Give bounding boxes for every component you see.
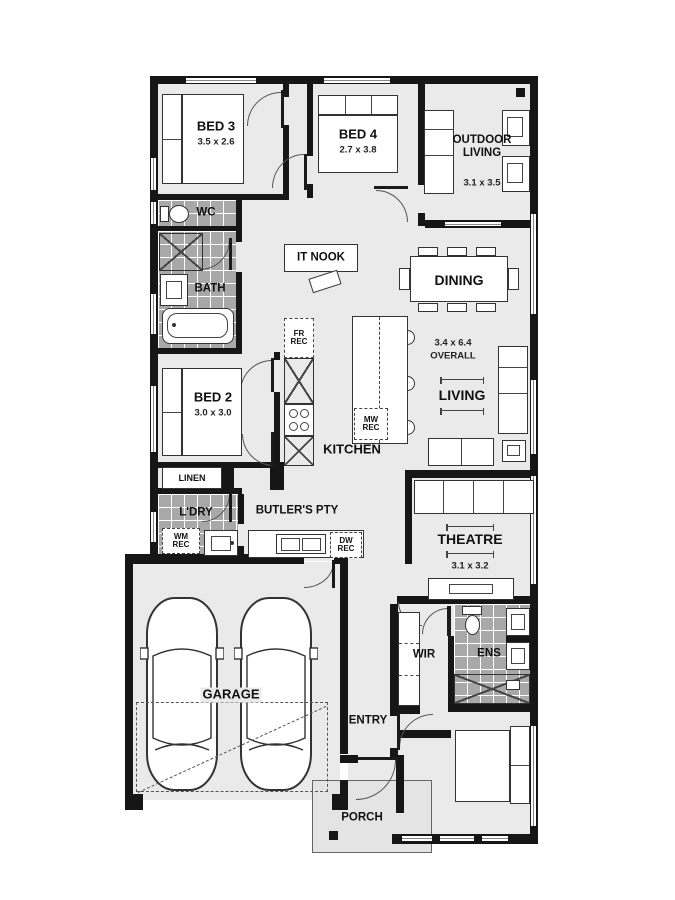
living-dim-tick-bottom [440, 410, 484, 411]
theatre-sofa-cushion-a [443, 481, 444, 513]
cooktop-burner-3 [289, 422, 298, 431]
door-leaf-bath [229, 238, 232, 270]
wall-wc-bath-divider [150, 226, 237, 231]
ens-basin-2 [511, 648, 525, 664]
wall-theatre-left [405, 478, 412, 564]
outdoor-sofa-cushion-a [425, 129, 453, 130]
dining-chair-bottom-3 [476, 303, 496, 312]
bathtub-drain [172, 323, 176, 327]
dining-chair-bottom-1 [418, 303, 438, 312]
outdoor-sofa [424, 110, 454, 194]
room-label-theatre: THEATRE [437, 531, 502, 547]
ens-cistern [462, 606, 482, 615]
wall-linen-block-b [270, 462, 284, 490]
wir-shelf-line-b [399, 675, 419, 676]
wir-shelf-line-a [399, 643, 419, 644]
butlers-sink-bowl-1 [281, 538, 300, 551]
pantry-cabinet-lower [284, 436, 314, 466]
wall-garage-right-b [340, 780, 348, 796]
pantry-cabinet-upper [284, 358, 314, 404]
wall-garage-left [125, 554, 133, 810]
room-label-laundry: L'DRY [179, 506, 213, 519]
window-wc [151, 202, 156, 224]
wall-theatre-top [405, 470, 538, 478]
window-laundry [151, 512, 156, 542]
door-leaf-hall-living [374, 186, 408, 189]
bed3-headboard [162, 94, 182, 184]
wall-bath-right-a [236, 194, 242, 242]
wall-bed4-left-b [307, 184, 313, 198]
wall-garage-right-a [340, 562, 348, 754]
floor-plan: FR REC MW REC WM REC [0, 0, 675, 900]
cooktop-unit [284, 404, 314, 436]
room-label-wir: WIR [413, 648, 435, 661]
living-sofa-right [498, 346, 528, 434]
wall-bath-right-b [236, 272, 242, 350]
room-label-bed4: BED 4 [339, 128, 377, 143]
room-label-entry: ENTRY [349, 714, 388, 727]
bed1-bed [455, 730, 510, 802]
bath-basin [166, 281, 182, 299]
window-bed1-bottom-a [402, 836, 432, 841]
bed4-headboard [318, 95, 398, 115]
dining-chair-bottom-2 [447, 303, 467, 312]
ens-vanity-2 [506, 642, 530, 670]
wall-bed2-right-b [274, 392, 280, 468]
room-dims-bed2: 3.0 x 3.0 [195, 409, 232, 420]
theatre-sofa-cushion-b [473, 481, 474, 513]
bed4-pillow-divider-a [345, 96, 346, 114]
room-label-living: LIVING [439, 387, 486, 403]
room-dims-bed4: 2.7 x 3.8 [340, 146, 377, 157]
theatre-dim-tick-bottom [446, 553, 494, 554]
room-dims-outdoor-living: 3.1 x 3.5 [464, 179, 501, 190]
window-living [531, 380, 536, 454]
wc-cistern [160, 206, 169, 222]
bathtub-inner [167, 313, 228, 338]
wall-entry-portico-right [396, 755, 404, 813]
bed1-headboard [510, 726, 530, 804]
living-couch [428, 438, 494, 466]
outdoor-post [516, 88, 525, 97]
bathtub [162, 308, 234, 344]
room-label-outdoor-living: OUTDOOR LIVING [453, 134, 512, 160]
ens-vanity-1 [506, 608, 530, 636]
dishwasher-recess-label: DW REC [338, 537, 355, 554]
room-label-ensuite: ENS [477, 647, 501, 660]
door-leaf-kitchen-hall [271, 432, 274, 466]
room-dims-theatre: 3.1 x 3.2 [452, 562, 489, 573]
wall-wc-top [150, 194, 289, 200]
window-bed3-side [151, 158, 156, 190]
sliding-door-outdoor [445, 222, 501, 226]
fridge-recess: FR REC [284, 318, 314, 358]
door-leaf-laundry [229, 492, 232, 522]
wall-bed2-right-a [274, 352, 280, 360]
room-label-linen: LINEN [179, 473, 206, 483]
bed2-headboard [162, 368, 182, 456]
living-sofa-cushion-a [499, 367, 527, 368]
ens-basin-1 [511, 614, 525, 630]
wall-garage-corner-right [332, 794, 348, 810]
room-label-kitchen: KITCHEN [323, 443, 381, 458]
room-label-bed2: BED 2 [194, 391, 232, 406]
door-leaf-bed2 [271, 358, 274, 392]
wall-bath-bottom [150, 348, 242, 354]
door-leaf-bed3 [281, 90, 284, 128]
window-bed1-bottom-c [482, 836, 508, 841]
window-bed2 [151, 386, 156, 452]
overall-dims-line2: OVERALL [430, 352, 475, 363]
bed4-pillow-divider-b [371, 96, 372, 114]
laundry-tap [230, 541, 234, 545]
room-label-dining: DINING [435, 272, 484, 288]
overall-dims-line1: 3.4 x 6.4 [435, 339, 472, 350]
door-leaf-ensuite [447, 606, 451, 636]
window-bed4 [324, 78, 390, 83]
fridge-recess-label: FR REC [291, 330, 308, 347]
window-bed1-bottom-b [440, 836, 474, 841]
tv-screen [449, 584, 493, 594]
dining-chair-top-1 [418, 247, 438, 256]
door-leaf-garage [332, 560, 335, 588]
theatre-sofa-cushion-c [503, 481, 504, 513]
door-leaf-front-entry [356, 757, 398, 760]
bath-shower [159, 233, 203, 271]
window-bath [151, 294, 156, 334]
dining-chair-left [399, 268, 410, 290]
room-label-butlers-pantry: BUTLER'S PTY [256, 504, 339, 517]
wc-toilet [169, 205, 189, 223]
room-label-porch: PORCH [341, 811, 383, 824]
porch-post [329, 831, 338, 840]
living-dim-tick-top [440, 379, 484, 380]
washing-machine-recess-label: WM REC [173, 533, 190, 550]
theatre-dim-tick-top [446, 526, 494, 527]
window-bed1-side [531, 726, 536, 826]
living-sofa-cushion-b [499, 393, 527, 394]
living-couch-cushion [461, 439, 462, 465]
cooktop-burner-1 [289, 409, 298, 418]
cooktop-burner-4 [300, 422, 309, 431]
theatre-sofa [414, 480, 534, 514]
window-bed3 [186, 78, 256, 83]
wall-ensuite-bottom [448, 704, 538, 712]
outdoor-chair-2-seat [507, 163, 523, 183]
laundry-trough-bowl [211, 536, 231, 551]
ens-toilet [465, 615, 480, 635]
dining-chair-top-3 [476, 247, 496, 256]
wall-bed4-left-a [307, 83, 313, 156]
microwave-recess: MW REC [354, 408, 388, 440]
door-leaf-bed4 [304, 154, 307, 190]
outdoor-sofa-cushion-b [425, 155, 453, 156]
wall-laundry-right-a [238, 494, 244, 524]
laundry-trough [204, 530, 238, 556]
room-label-garage: GARAGE [200, 688, 261, 703]
butlers-sink [276, 534, 326, 554]
room-label-bed3: BED 3 [197, 120, 235, 135]
wall-garage-corner-left [125, 794, 143, 810]
room-label-bath: BATH [194, 282, 225, 295]
outdoor-chair-2 [502, 156, 530, 192]
bed3-pillow-divider [163, 139, 181, 140]
butlers-sink-bowl-2 [302, 538, 321, 551]
living-side-table-inner [507, 445, 520, 456]
cooktop-burner-2 [300, 409, 309, 418]
tv-unit [428, 578, 514, 600]
room-dims-bed3: 3.5 x 2.6 [198, 138, 235, 149]
washing-machine-recess: WM REC [162, 528, 200, 554]
door-leaf-bed1 [397, 712, 400, 750]
microwave-recess-label: MW REC [363, 416, 380, 433]
wall-bed4-right-b [418, 213, 425, 226]
dishwasher-recess: DW REC [330, 532, 362, 558]
dining-chair-right [508, 268, 519, 290]
room-label-it-nook: IT NOOK [297, 251, 345, 264]
bed1-pillow-divider [511, 765, 529, 766]
bath-vanity [160, 274, 188, 306]
wall-wir-left [390, 604, 398, 710]
living-side-table [502, 440, 526, 462]
room-label-wc: WC [196, 206, 215, 219]
window-dining [531, 214, 536, 314]
bed2-pillow-divider [163, 412, 181, 413]
ens-shower-drain [506, 680, 520, 690]
dining-chair-top-2 [447, 247, 467, 256]
